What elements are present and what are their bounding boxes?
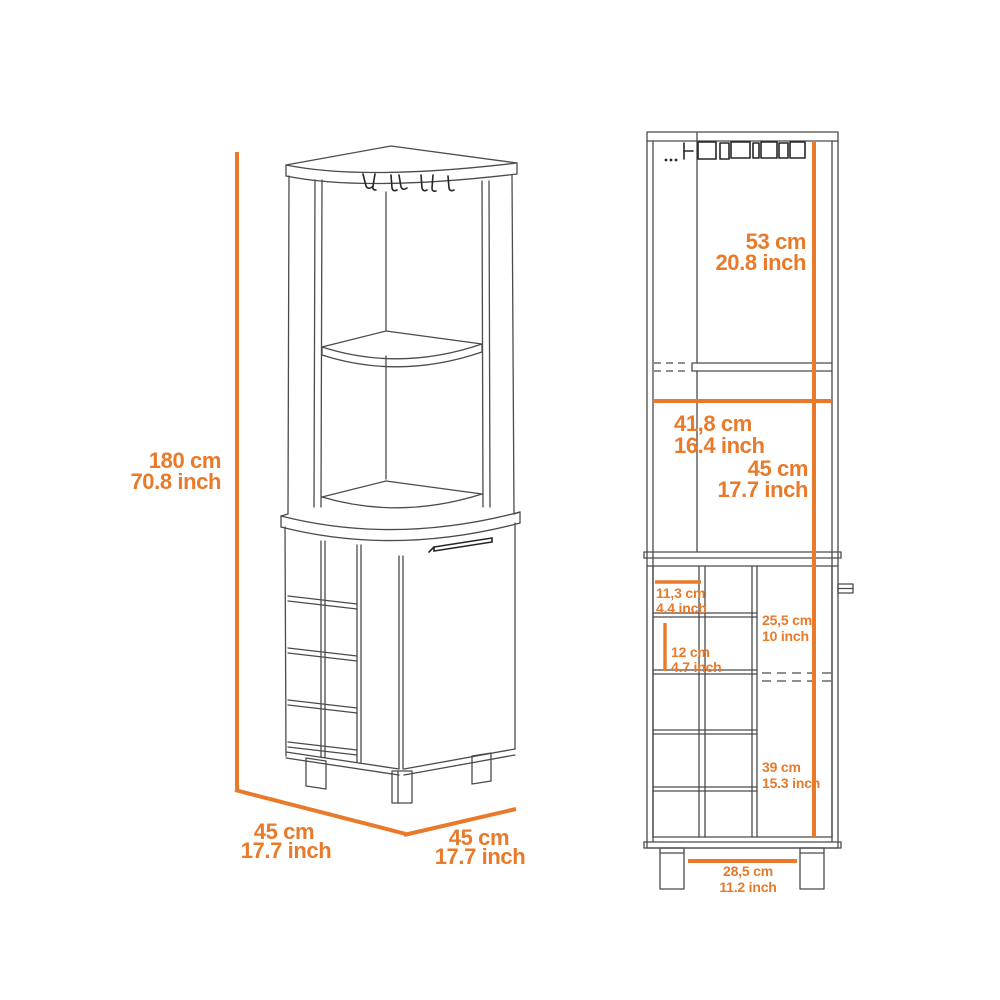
counter-front — [644, 552, 841, 566]
dimension-diagram: 180 cm 70.8 inch 45 cm 17.7 inch 45 cm 1… — [0, 0, 1000, 1000]
middle-shelf-front — [654, 363, 832, 371]
hutch-bottom-shelf-3d — [322, 481, 482, 508]
upper-door-inch-label: 10 inch — [762, 628, 809, 644]
height-inch-label: 70.8 inch — [130, 469, 221, 494]
leg-span-inch-label: 11.2 inch — [719, 879, 776, 895]
lower-cabinet-3d — [285, 523, 515, 775]
lower-door-inch-label: 15.3 inch — [762, 775, 820, 791]
lower-opening-inch-label: 17.7 inch — [717, 477, 808, 502]
lower-door-cm-label: 39 cm — [762, 759, 801, 775]
front-view: 53 cm 20.8 inch 41,8 cm 16.4 inch 45 cm … — [644, 132, 853, 895]
width-inch-label: 17.7 inch — [435, 844, 526, 869]
bottle-slot-height-cm-label: 12 cm — [671, 644, 710, 660]
bottle-slot-width-cm-label: 11,3 cm — [656, 585, 705, 601]
wine-rack-3d — [288, 596, 357, 755]
hutch-frame-3d — [281, 175, 520, 516]
door-handle-3d — [429, 538, 492, 552]
leg-span-cm-label: 28,5 cm — [723, 863, 773, 879]
depth-inch-label: 17.7 inch — [241, 838, 332, 863]
upper-door-cm-label: 25,5 cm — [762, 612, 812, 628]
diagram-svg: 180 cm 70.8 inch 45 cm 17.7 inch 45 cm 1… — [0, 0, 1000, 1000]
middle-shelf-3d — [322, 331, 482, 367]
bottle-slot-width-inch-label: 4.4 inch — [656, 600, 707, 616]
cabinet-top-3d — [286, 146, 517, 184]
bottle-slot-height-inch-label: 4.7 inch — [671, 659, 722, 675]
upper-opening-inch-label: 20.8 inch — [715, 250, 806, 275]
counter-top-3d — [281, 512, 520, 541]
door-handle-front — [838, 584, 853, 593]
stemware-rack-front — [665, 142, 805, 161]
interior-width-inch-label: 16.4 inch — [674, 433, 765, 458]
perspective-view: 180 cm 70.8 inch 45 cm 17.7 inch 45 cm 1… — [130, 146, 525, 869]
